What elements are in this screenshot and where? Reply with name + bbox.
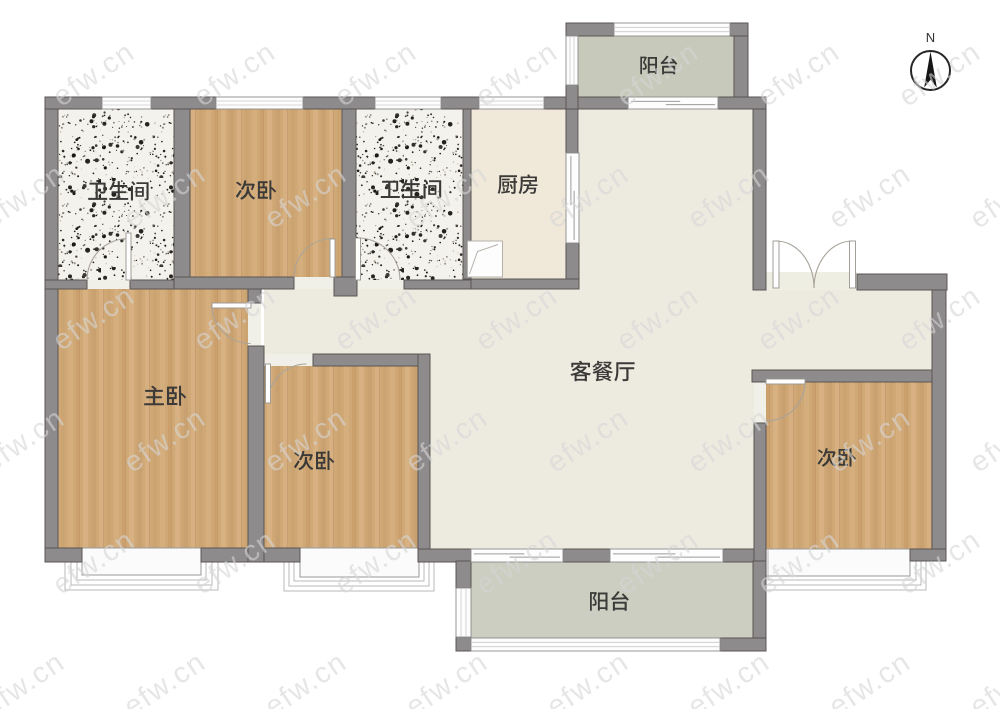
svg-text:N: N [926, 30, 935, 45]
